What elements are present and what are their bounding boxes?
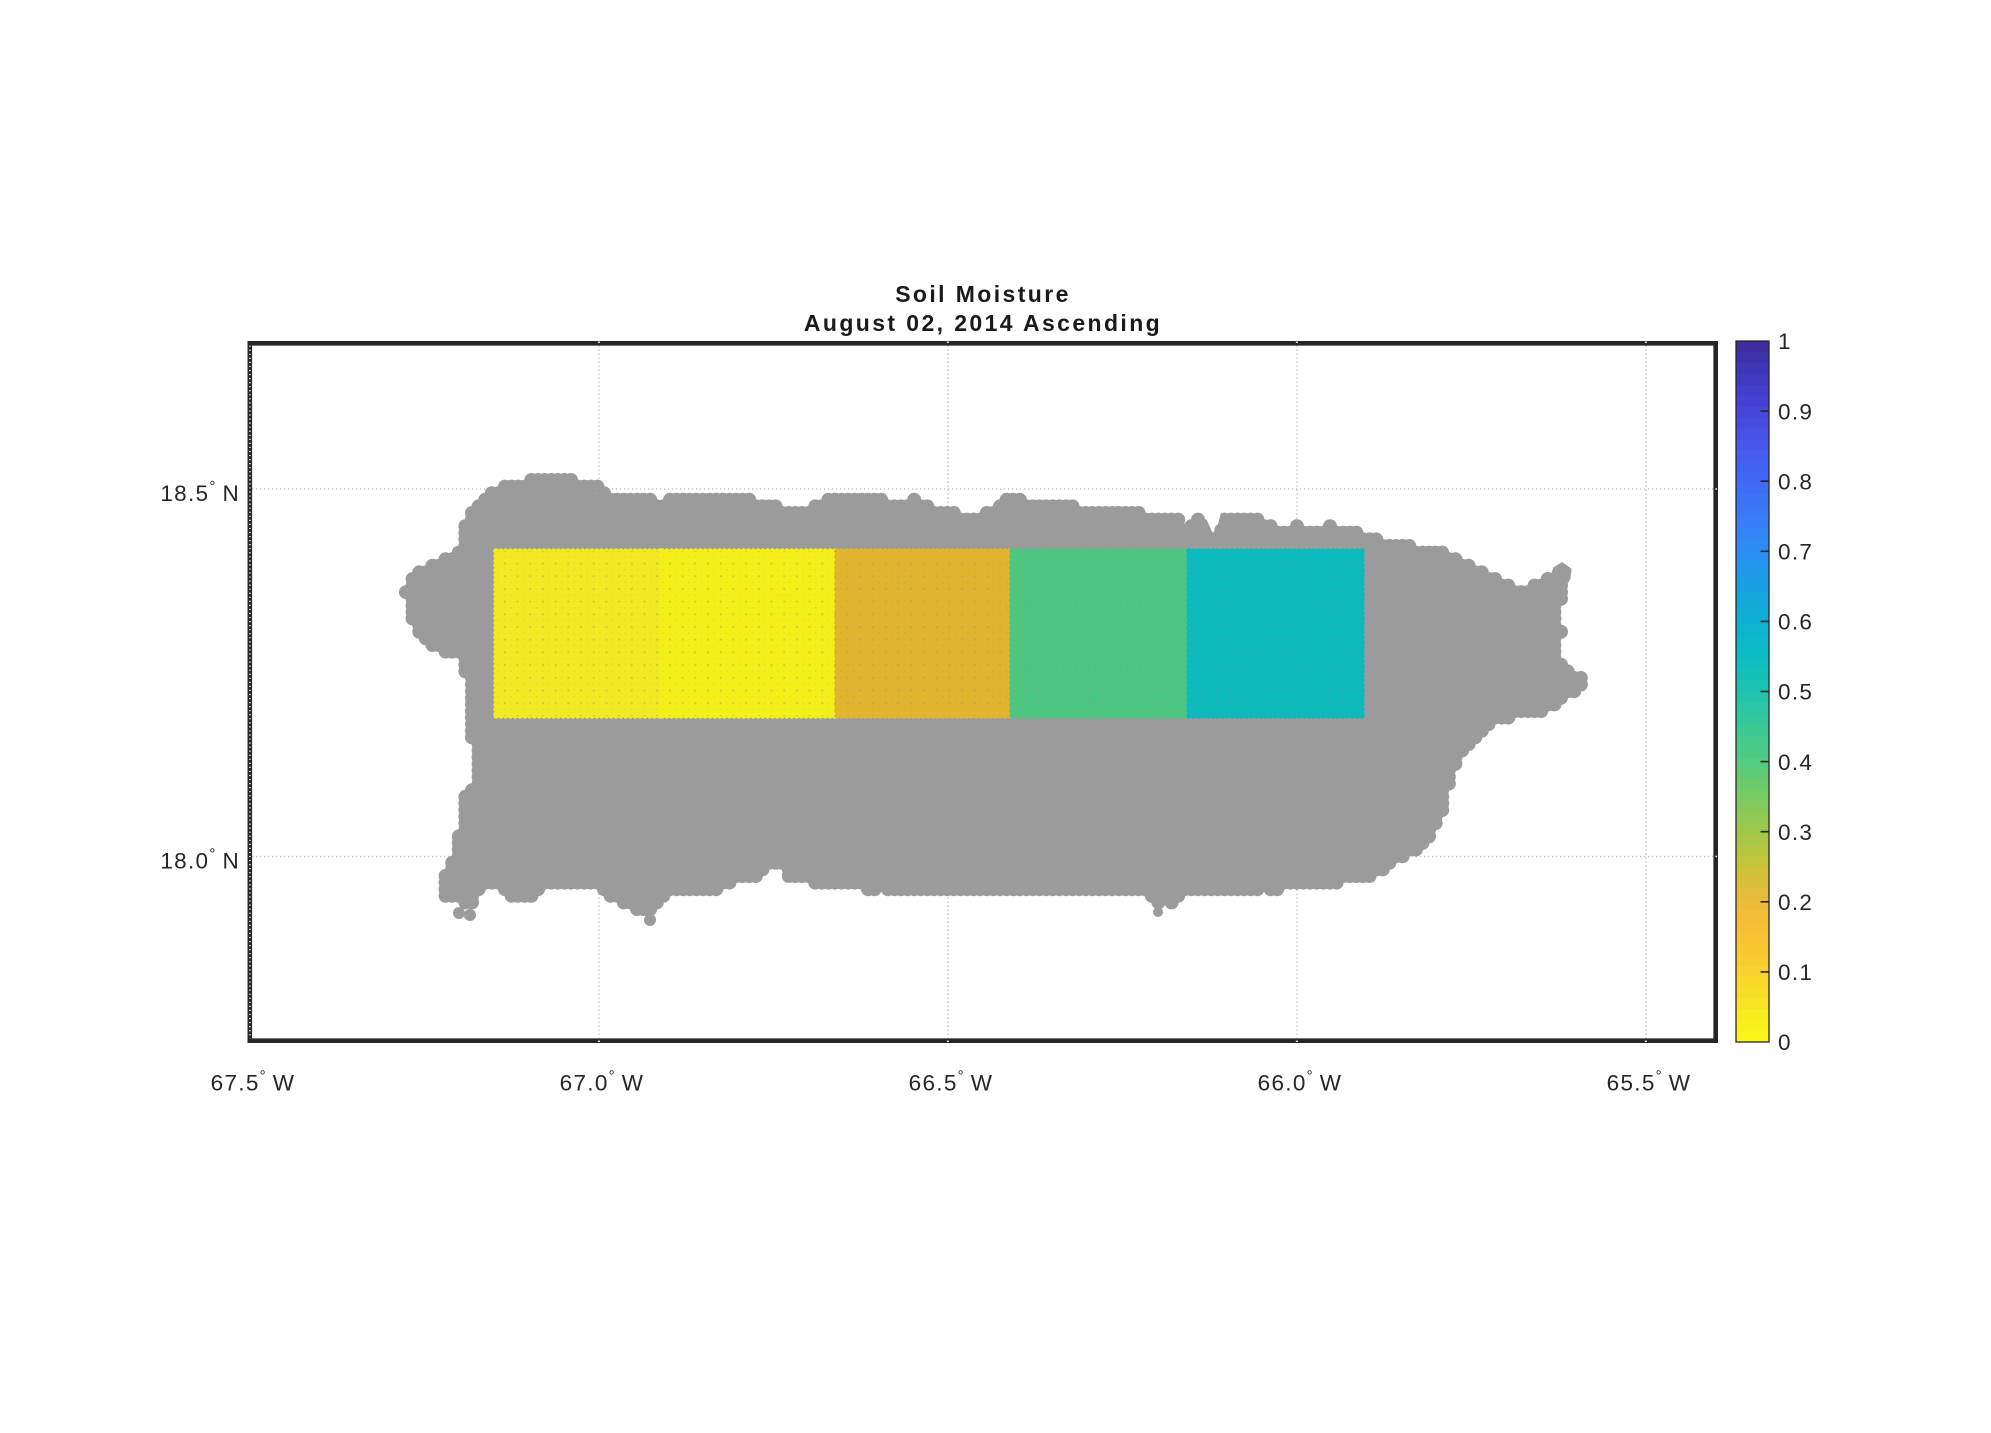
svg-text:Soil Moisture: Soil Moisture bbox=[895, 281, 1071, 307]
svg-text:18.5° N: 18.5° N bbox=[160, 478, 240, 506]
svg-text:0.6: 0.6 bbox=[1778, 610, 1813, 635]
svg-text:0.8: 0.8 bbox=[1778, 469, 1813, 494]
svg-text:1: 1 bbox=[1778, 329, 1792, 354]
svg-text:67.0° W: 67.0° W bbox=[560, 1068, 645, 1096]
svg-text:65.5° W: 65.5° W bbox=[1607, 1068, 1692, 1096]
svg-text:66.0° W: 66.0° W bbox=[1258, 1068, 1343, 1096]
svg-text:66.5° W: 66.5° W bbox=[909, 1068, 994, 1096]
svg-text:0.3: 0.3 bbox=[1778, 820, 1813, 845]
svg-text:67.5° W: 67.5° W bbox=[211, 1068, 296, 1096]
svg-text:0.4: 0.4 bbox=[1778, 750, 1813, 775]
svg-text:0.1: 0.1 bbox=[1778, 960, 1813, 985]
svg-text:0.9: 0.9 bbox=[1778, 399, 1813, 424]
svg-text:0.7: 0.7 bbox=[1778, 540, 1813, 565]
svg-text:0.5: 0.5 bbox=[1778, 680, 1813, 705]
svg-text:0.2: 0.2 bbox=[1778, 890, 1813, 915]
svg-text:18.0° N: 18.0° N bbox=[160, 846, 240, 874]
svg-text:August 02, 2014 Ascending: August 02, 2014 Ascending bbox=[804, 310, 1162, 336]
svg-text:0: 0 bbox=[1778, 1030, 1792, 1055]
